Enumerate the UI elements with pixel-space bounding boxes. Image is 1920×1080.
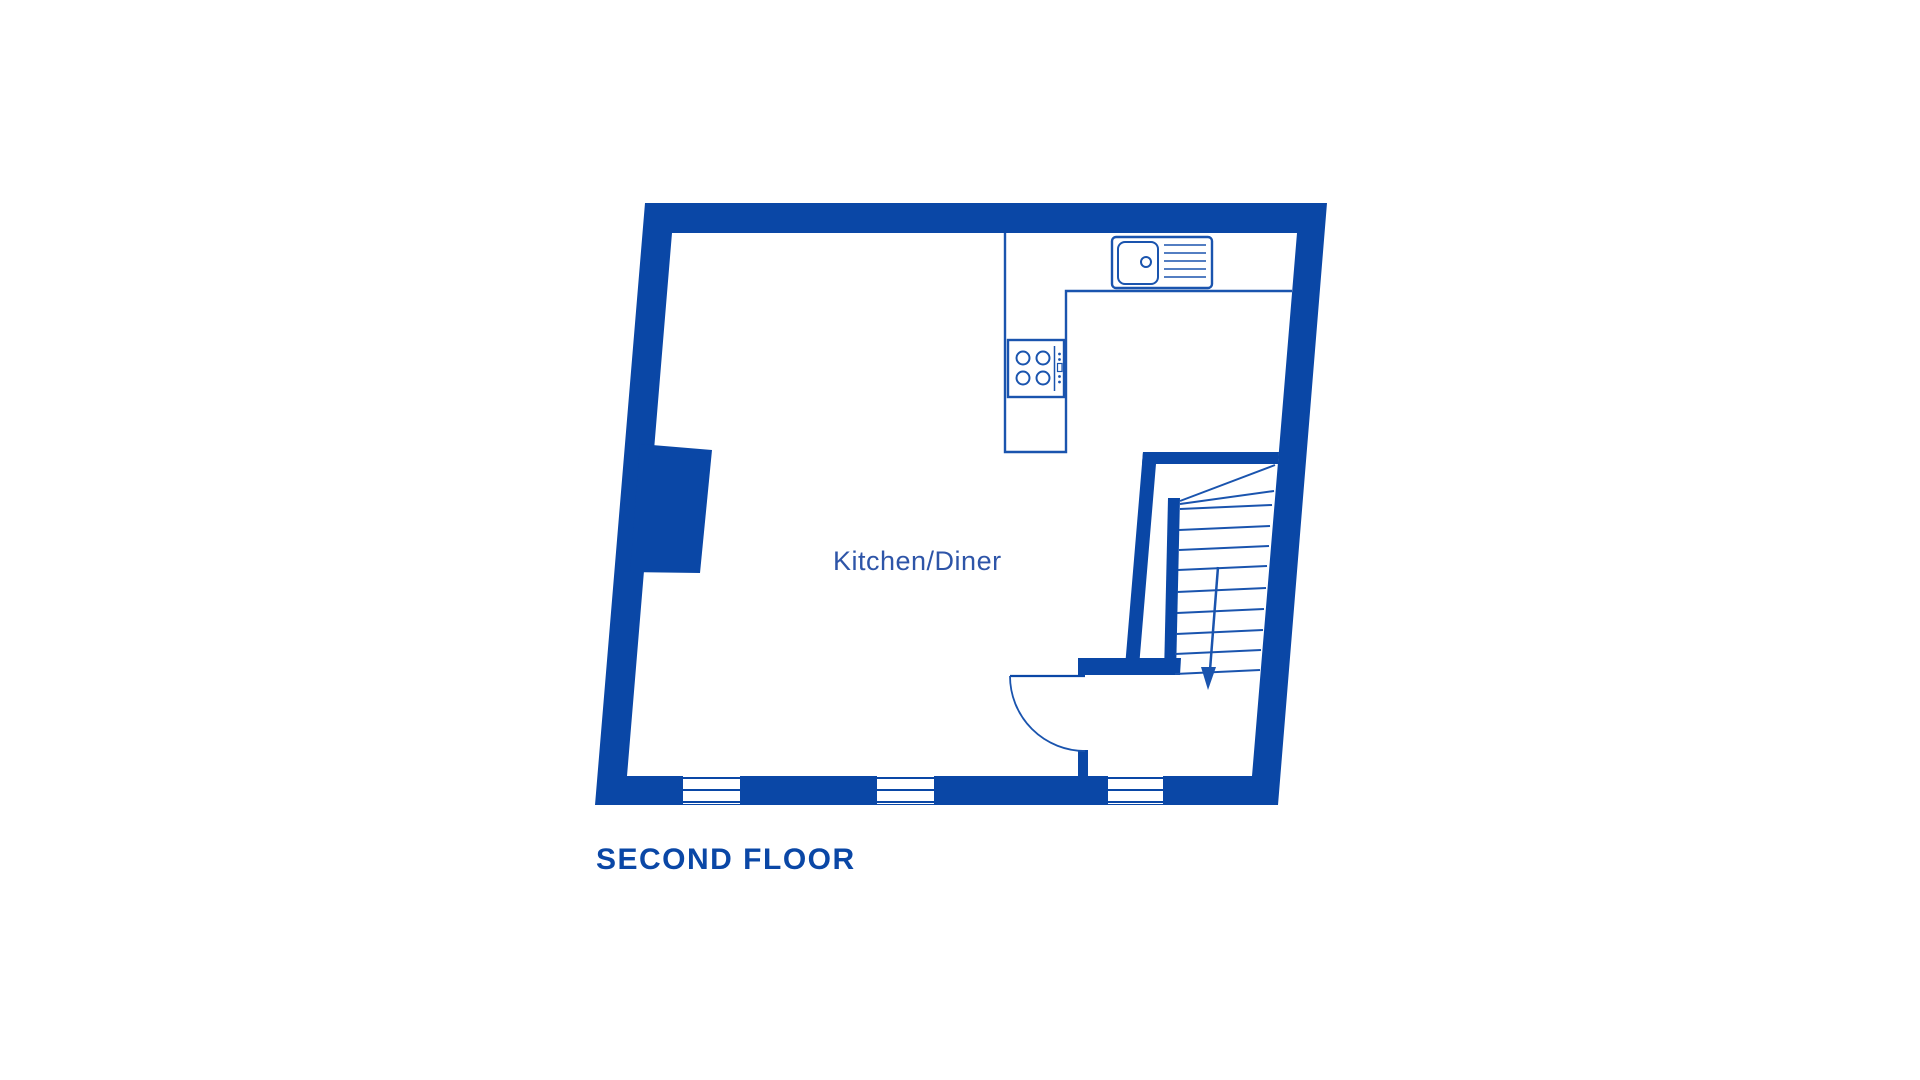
floorplan-svg (0, 0, 1920, 1080)
room-label: Kitchen/Diner (833, 546, 1002, 577)
window-1 (683, 776, 740, 804)
wall-pillar (630, 444, 712, 573)
staircase-treads (1175, 465, 1275, 674)
staircase-walls (1078, 452, 1279, 777)
window-2 (877, 776, 934, 804)
sink-icon (1112, 237, 1212, 288)
hob-icon (1008, 340, 1064, 397)
window-3 (1108, 776, 1163, 804)
door-swing-icon (1010, 676, 1085, 751)
floorplan-canvas: Kitchen/Diner SECOND FLOOR (0, 0, 1920, 1080)
floor-label: SECOND FLOOR (596, 843, 856, 877)
